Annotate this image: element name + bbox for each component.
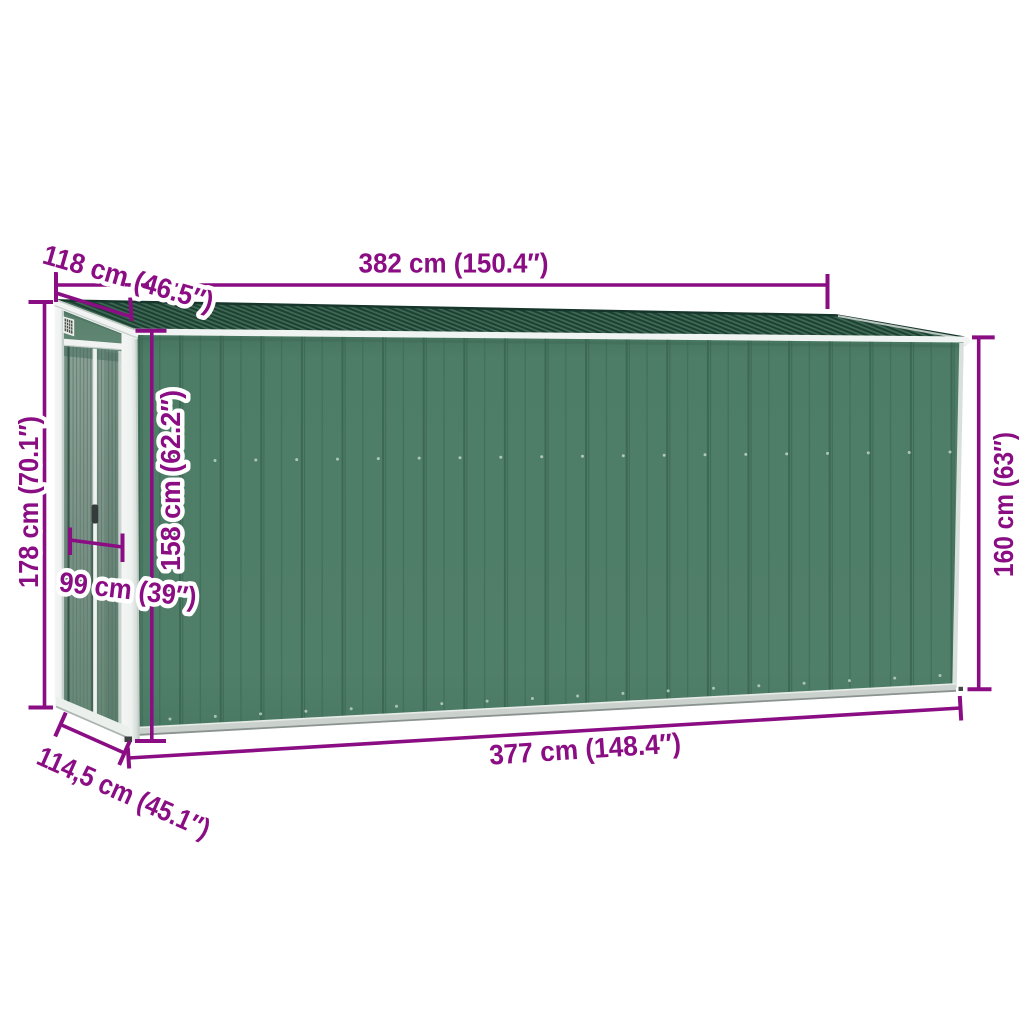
svg-text:178 cm (70.1″): 178 cm (70.1″) xyxy=(13,416,44,588)
svg-text:160 cm (63″): 160 cm (63″) xyxy=(988,432,1019,577)
svg-text:382 cm (150.4″): 382 cm (150.4″) xyxy=(359,248,549,279)
svg-text:158 cm (62.2″): 158 cm (62.2″) xyxy=(155,390,186,571)
